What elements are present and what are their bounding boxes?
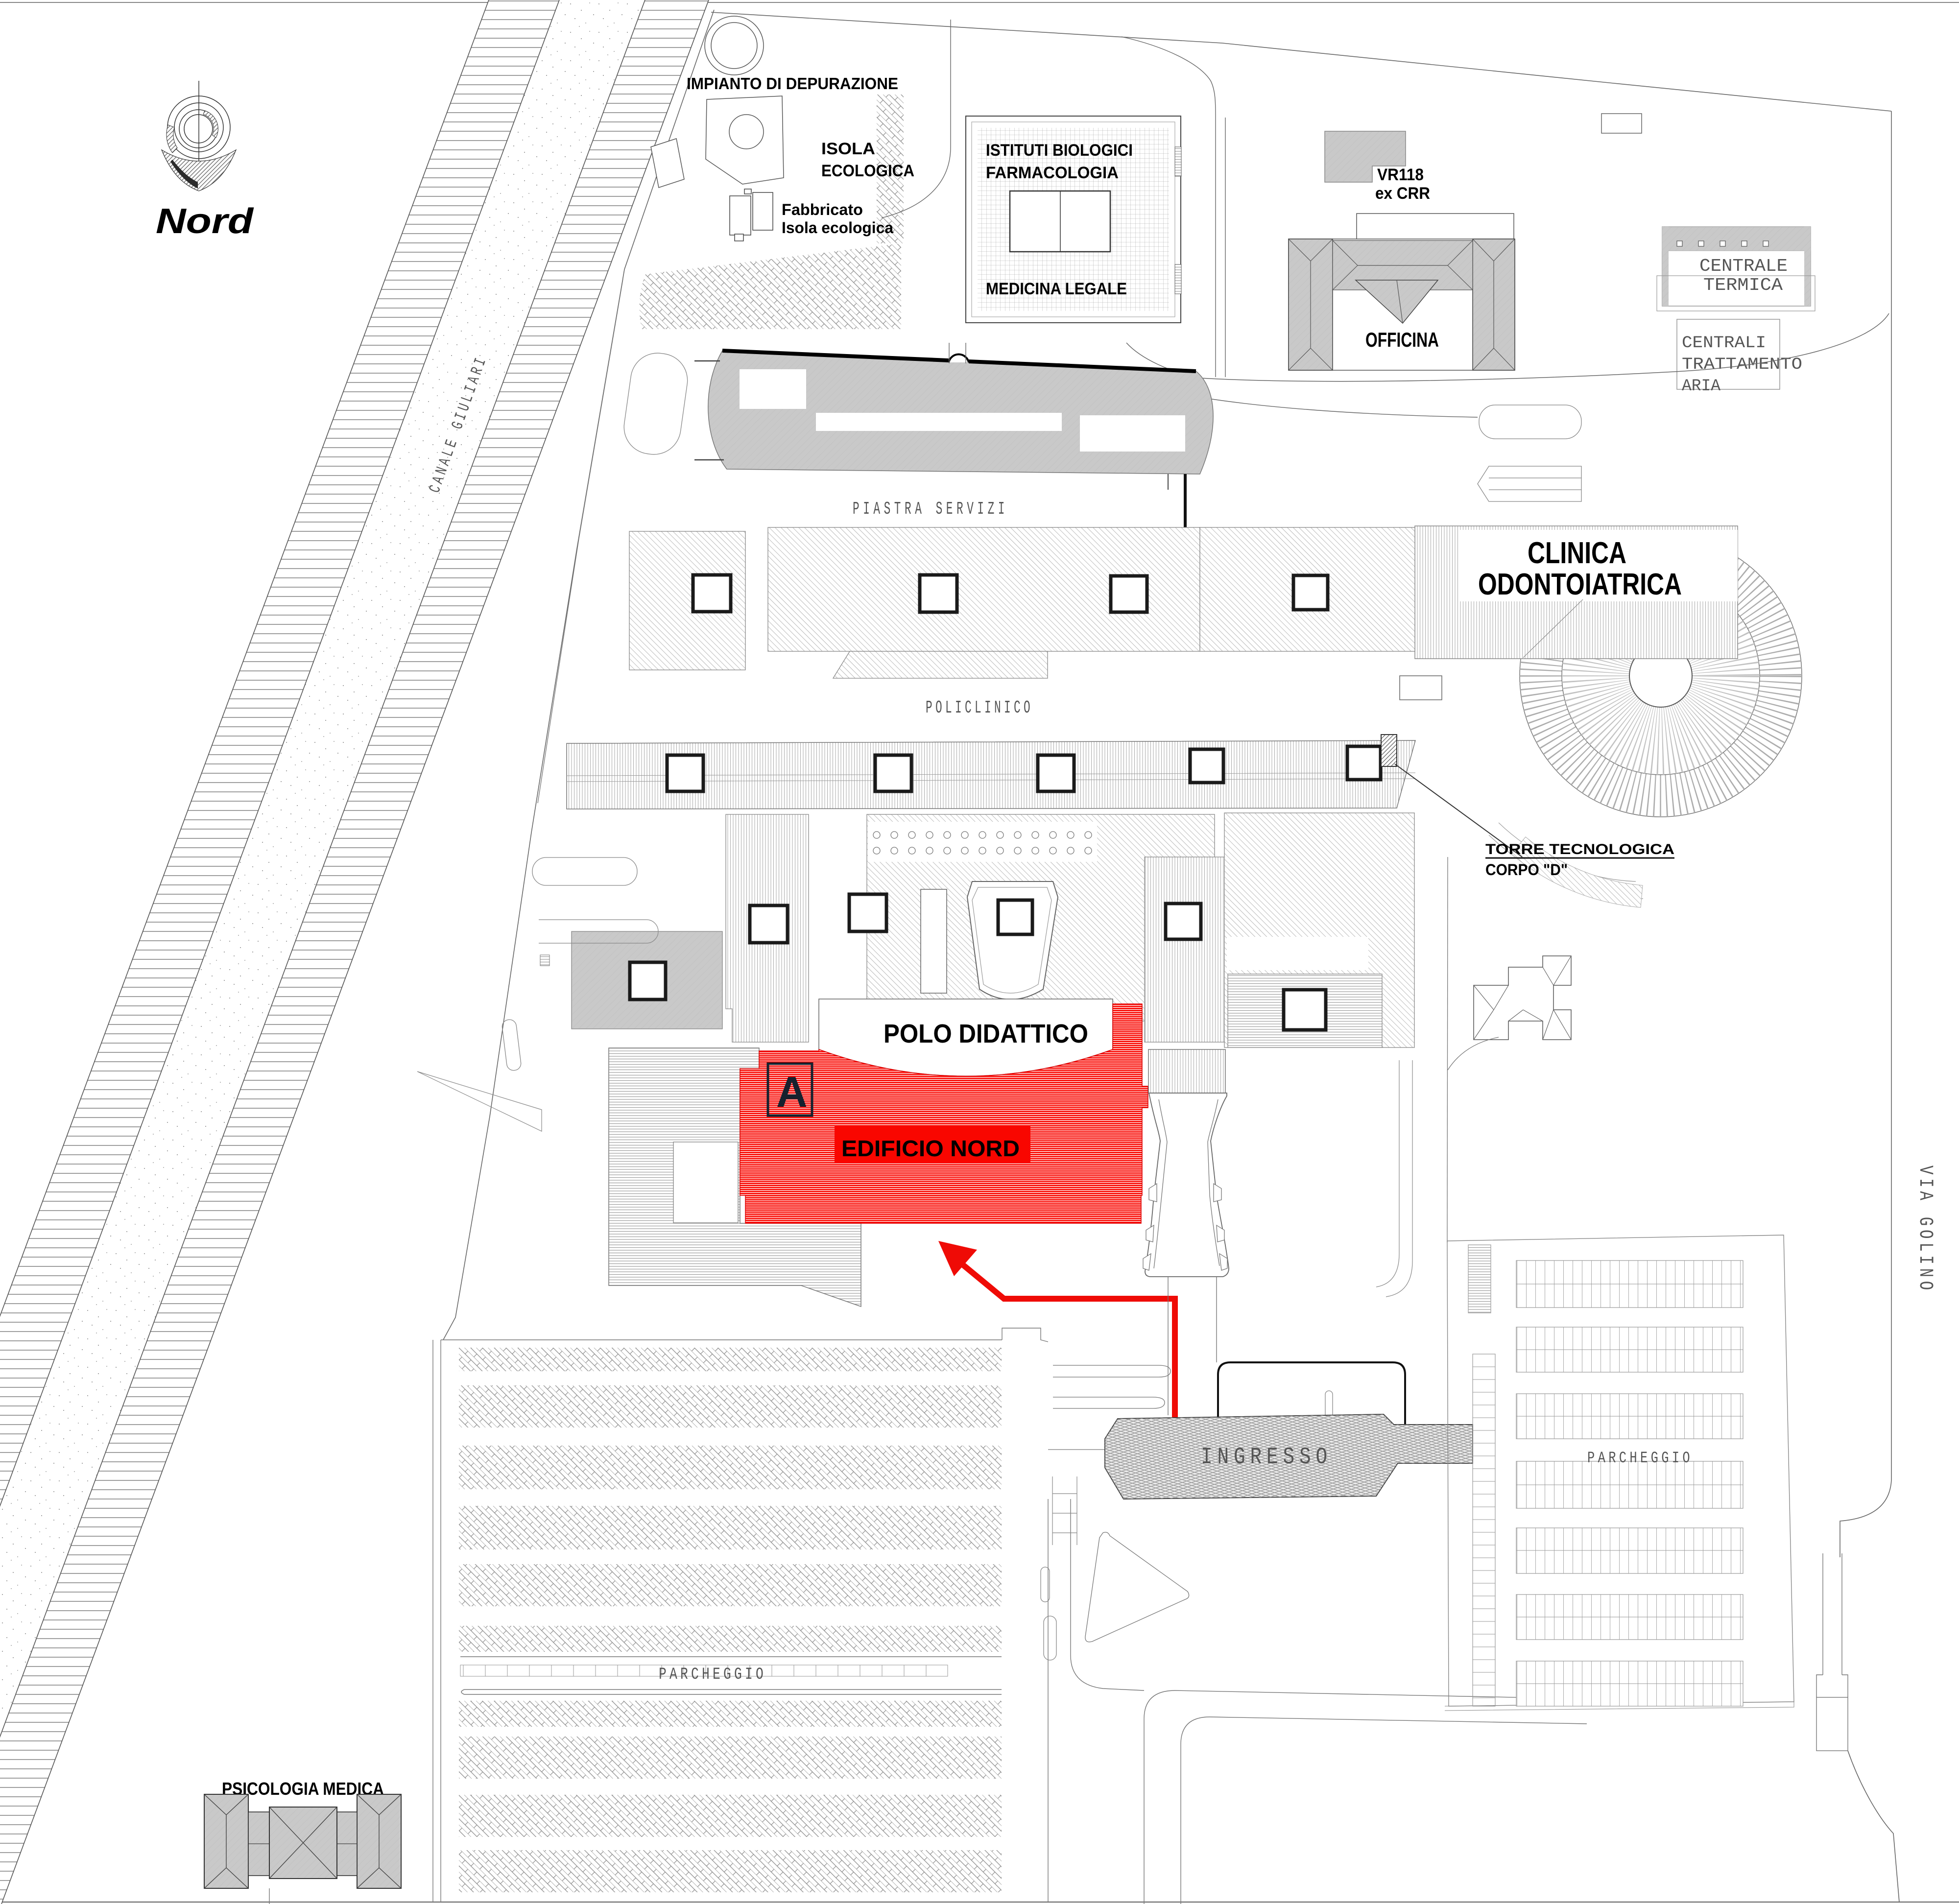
svg-text:OFFICINA: OFFICINA [1365, 328, 1439, 351]
svg-text:MEDICINA LEGALE: MEDICINA LEGALE [986, 280, 1127, 298]
svg-text:FARMACOLOGIA: FARMACOLOGIA [986, 164, 1119, 182]
svg-text:TERMICA: TERMICA [1703, 275, 1783, 295]
svg-text:PARCHEGGIO: PARCHEGGIO [659, 1666, 766, 1684]
svg-text:TRATTAMENTO: TRATTAMENTO [1682, 356, 1802, 374]
svg-text:CENTRALI: CENTRALI [1682, 334, 1766, 353]
svg-text:CLINICA: CLINICA [1528, 536, 1626, 570]
svg-text:PIASTRA SERVIZI: PIASTRA SERVIZI [853, 499, 1008, 519]
svg-text:ODONTOIATRICA: ODONTOIATRICA [1478, 568, 1682, 601]
svg-text:VR118: VR118 [1377, 166, 1424, 184]
svg-text:ISOLA: ISOLA [821, 140, 875, 158]
svg-text:ECOLOGICA: ECOLOGICA [821, 162, 914, 180]
svg-text:VIA GOLINO: VIA GOLINO [1914, 1166, 1936, 1294]
svg-text:POLICLINICO: POLICLINICO [926, 698, 1033, 718]
svg-text:IMPIANTO DI DEPURAZIONE: IMPIANTO DI DEPURAZIONE [687, 74, 898, 93]
svg-text:POLO DIDATTICO: POLO DIDATTICO [884, 1019, 1088, 1048]
svg-text:ex CRR: ex CRR [1375, 184, 1430, 203]
svg-text:ARIA: ARIA [1682, 377, 1721, 396]
svg-text:CORPO "D": CORPO "D" [1485, 861, 1568, 879]
svg-text:INGRESSO: INGRESSO [1201, 1444, 1332, 1471]
svg-text:A: A [776, 1068, 808, 1116]
svg-text:ISTITUTI BIOLOGICI: ISTITUTI BIOLOGICI [986, 141, 1133, 160]
svg-text:Nord: Nord [156, 202, 254, 241]
svg-text:TORRE TECNOLOGICA: TORRE TECNOLOGICA [1485, 841, 1674, 857]
svg-text:CENTRALE: CENTRALE [1699, 256, 1788, 276]
svg-text:PARCHEGGIO: PARCHEGGIO [1587, 1449, 1693, 1467]
svg-text:Fabbricato: Fabbricato [782, 201, 863, 218]
svg-text:Isola ecologica: Isola ecologica [782, 219, 893, 237]
svg-text:EDIFICIO NORD: EDIFICIO NORD [841, 1136, 1020, 1161]
